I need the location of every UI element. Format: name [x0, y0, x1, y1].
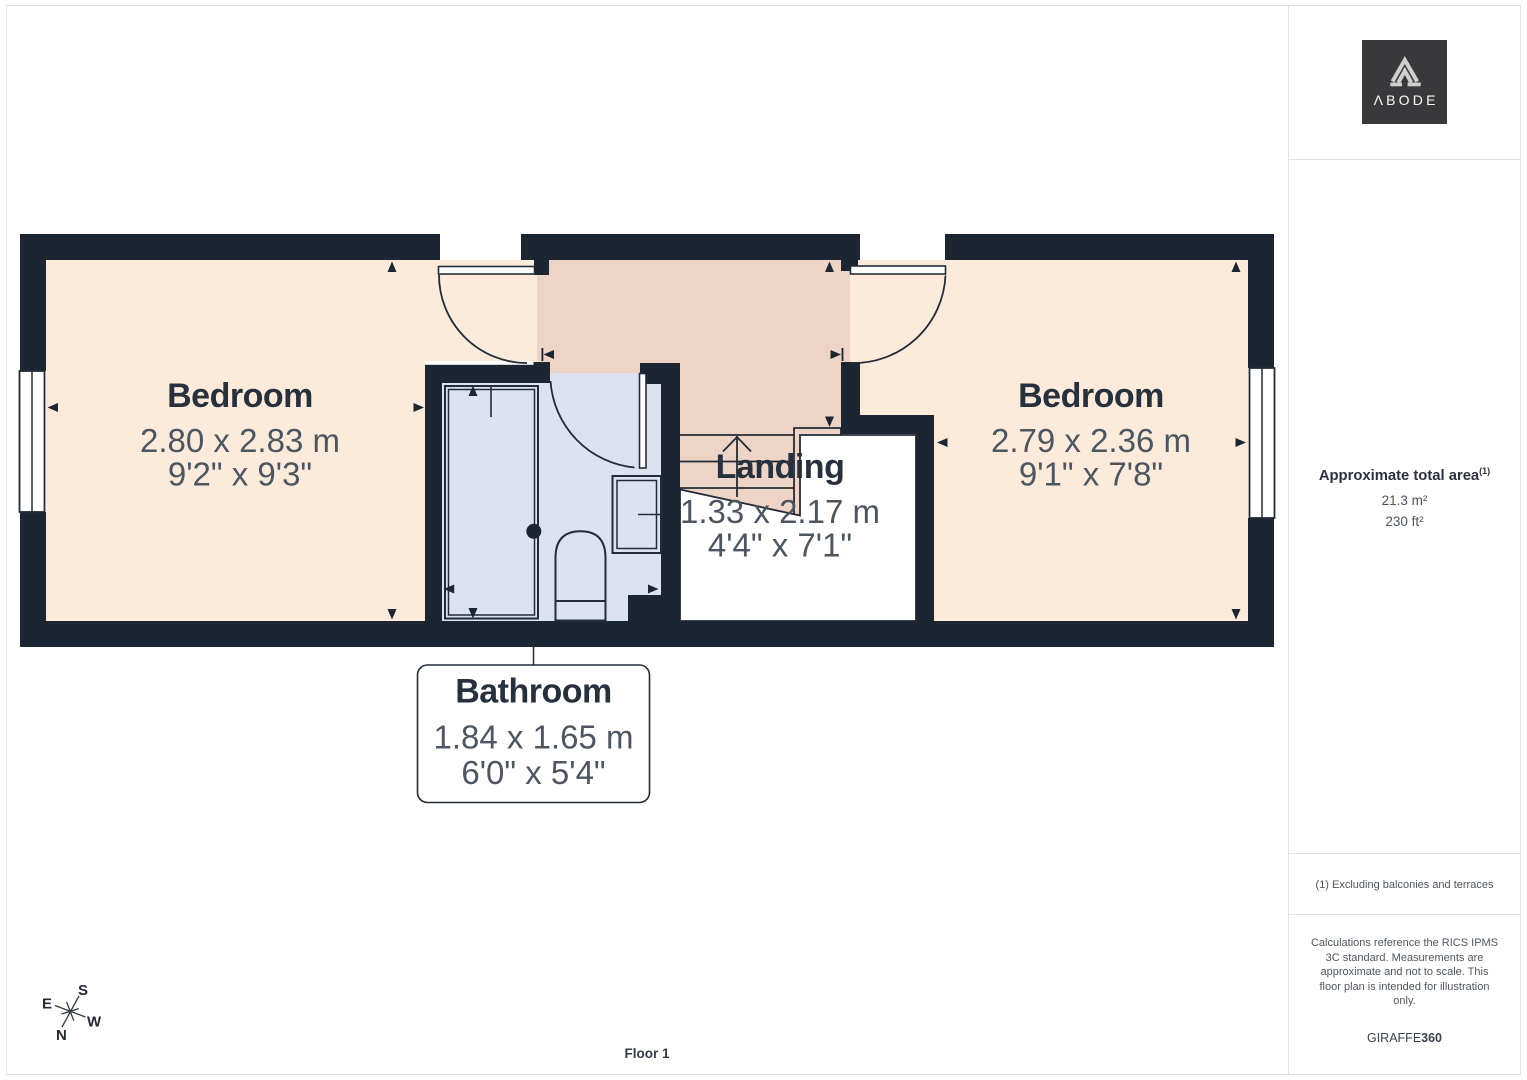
- svg-text:2.80 x 2.83 m: 2.80 x 2.83 m: [140, 422, 340, 459]
- svg-text:Landing: Landing: [716, 448, 845, 486]
- svg-text:9'2" x 9'3": 9'2" x 9'3": [168, 455, 312, 492]
- svg-text:1.84 x 1.65 m: 1.84 x 1.65 m: [434, 719, 634, 756]
- svg-text:Bedroom: Bedroom: [167, 377, 313, 415]
- svg-text:1.33 x 2.17 m: 1.33 x 2.17 m: [680, 493, 880, 530]
- svg-text:4'4" x 7'1": 4'4" x 7'1": [708, 526, 852, 563]
- svg-text:6'0" x 5'4": 6'0" x 5'4": [461, 754, 605, 791]
- svg-text:9'1" x 7'8": 9'1" x 7'8": [1019, 455, 1163, 492]
- svg-text:2.79 x 2.36 m: 2.79 x 2.36 m: [991, 422, 1191, 459]
- svg-text:Bathroom: Bathroom: [455, 673, 612, 711]
- svg-text:Bedroom: Bedroom: [1018, 377, 1164, 415]
